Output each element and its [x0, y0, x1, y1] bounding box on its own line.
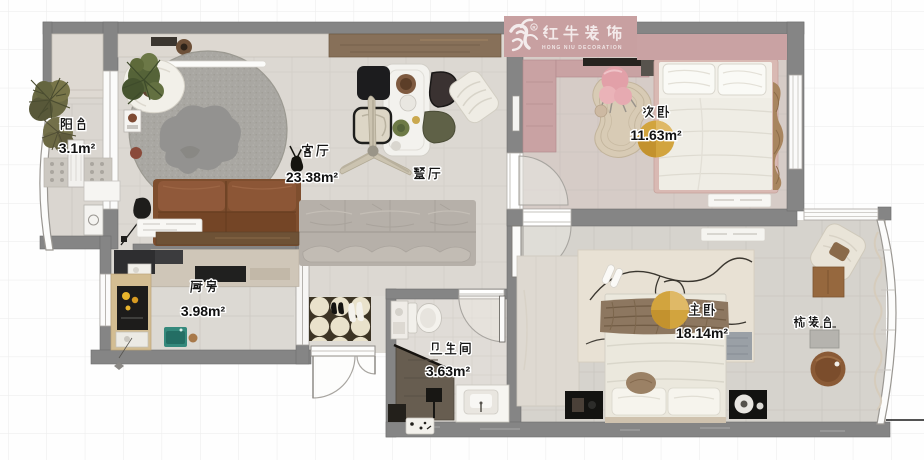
svg-text:23.38m²: 23.38m²: [286, 169, 338, 185]
svg-text:3.63m²: 3.63m²: [426, 363, 471, 379]
svg-text:18.14m²: 18.14m²: [676, 325, 728, 341]
svg-text:11.63m²: 11.63m²: [630, 127, 682, 143]
svg-text:HONG NIU DECORATION: HONG NIU DECORATION: [542, 45, 623, 51]
svg-text:3.98m²: 3.98m²: [181, 303, 226, 319]
svg-text:3.1m²: 3.1m²: [59, 140, 96, 156]
